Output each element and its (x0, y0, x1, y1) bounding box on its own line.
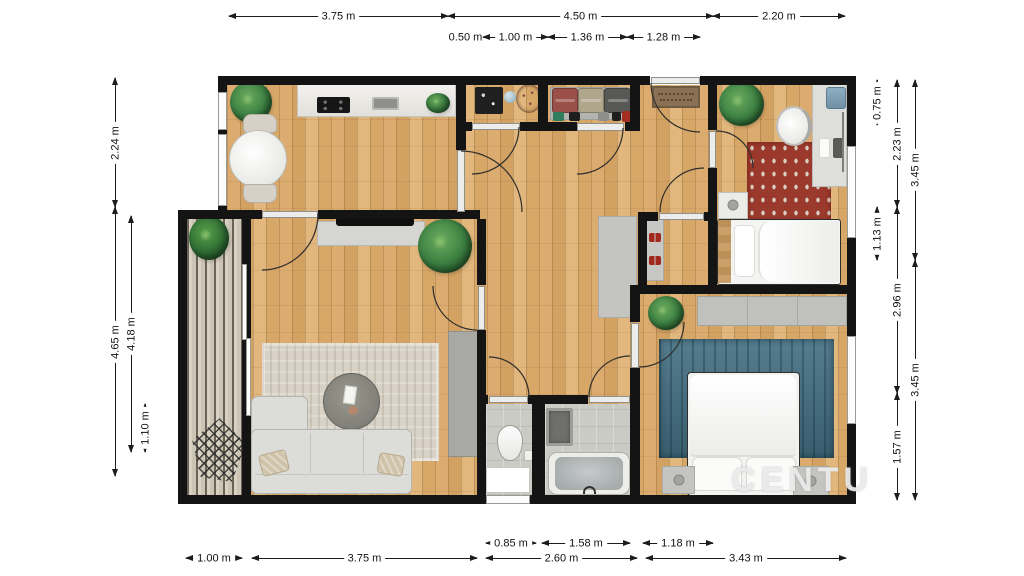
dimension-label: 2.20 m (758, 10, 800, 23)
dimension-line: 2.96 m (897, 207, 898, 393)
dimension-line: 2.20 m (713, 16, 845, 17)
door-left-nook (472, 123, 520, 130)
dimension-arrow (894, 493, 900, 501)
single-bed-duvet (758, 221, 839, 282)
wall-living-hall-lower (477, 330, 486, 495)
nightstand-left (662, 466, 695, 494)
kids-room-window (847, 146, 856, 238)
wall-master-left-lower (630, 368, 640, 495)
tv (336, 219, 414, 226)
door-wc (489, 396, 528, 403)
dimension-arrow (912, 79, 918, 87)
dimension-label: 1.00 m (495, 31, 537, 44)
dimension-arrow (912, 259, 918, 267)
single-bed (717, 219, 841, 285)
dimension-label: 0.50 m (445, 31, 487, 44)
dimension-arrow (630, 555, 638, 561)
bathroom-sink (546, 408, 573, 446)
sofa-seam-1 (310, 433, 311, 473)
dimension-label: 1.28 m (643, 31, 685, 44)
wall-kitchen-living-west (178, 210, 262, 219)
dimension-line: 3.45 m (915, 260, 916, 500)
dimension-arrow (838, 13, 846, 19)
dimension-line: 1.57 m (897, 393, 898, 500)
dimension-label: 2.23 m (891, 123, 904, 165)
master-wardrobe (697, 296, 847, 326)
dimension-line: 1.10 m (145, 404, 146, 452)
dimension-arrow (112, 77, 118, 85)
door-master (631, 323, 639, 368)
dimension-line: 1.18 m (643, 543, 713, 544)
closet-red-shoes-1 (649, 233, 661, 242)
master-plant (648, 296, 684, 330)
door-closet (659, 213, 704, 220)
coffee-table (323, 373, 380, 430)
table-decor (348, 406, 358, 415)
dimension-label: 3.75 m (318, 10, 360, 23)
wall-hall-kidsroom-lower (708, 168, 717, 212)
bathtub-faucet (583, 486, 596, 494)
wc-window-fixture (486, 467, 530, 493)
single-bed-headboard (718, 220, 731, 283)
wall-bedrooms-divider (630, 285, 856, 294)
wall-closet-top-right (704, 212, 717, 221)
dimension-arrow (541, 540, 549, 546)
desk-pen (842, 112, 844, 172)
balcony-sliding-door-pane-1 (242, 264, 247, 340)
dimension-label: 1.10 m (139, 407, 152, 449)
dimension-arrow (128, 215, 134, 223)
door-kitchen-hall (457, 150, 465, 212)
dimension-label: 1.36 m (567, 31, 609, 44)
balcony-sliding-door-pane-2 (246, 338, 251, 416)
shoe-black-2 (612, 112, 621, 121)
dimension-label: 1.13 m (871, 213, 884, 255)
entry-console-table (475, 87, 503, 114)
dining-table (229, 130, 287, 188)
wall-balcony-left (178, 210, 187, 504)
door-entry (651, 77, 700, 84)
dimension-line: 4.18 m (131, 216, 132, 452)
hanging-clothes-red (552, 88, 578, 113)
dimension-arrow (693, 34, 701, 40)
sofa-seam-2 (363, 433, 364, 473)
wall-closet-right (708, 212, 717, 294)
wall-nook-bottom-2 (520, 122, 577, 131)
wall-top-right (700, 76, 856, 85)
kitchen-window-lower (218, 134, 227, 206)
dimension-label: 1.57 m (891, 426, 904, 468)
dimension-arrow (447, 13, 455, 19)
dimension-line: 1.36 m (548, 37, 627, 38)
shoe-black-1 (569, 112, 580, 121)
door-kids-room (709, 131, 716, 168)
dimension-label: 4.65 m (109, 321, 122, 363)
dimension-arrow (185, 555, 193, 561)
dimension-arrow (235, 555, 243, 561)
balcony-bush (189, 216, 229, 260)
dimension-label: 2.24 m (109, 122, 122, 164)
dimension-line: 0.85 m (486, 543, 536, 544)
dimension-arrow (712, 13, 720, 19)
wall-top-left (218, 76, 650, 85)
dimension-label: 2.96 m (891, 279, 904, 321)
dimension-line: 3.43 m (646, 558, 846, 559)
shoe-green (553, 112, 564, 121)
dimension-line: 2.24 m (115, 78, 116, 207)
door-bathroom (589, 396, 630, 403)
dimension-label: 4.18 m (125, 313, 138, 355)
dimension-arrow (645, 555, 653, 561)
shoe-gray (598, 112, 609, 121)
dimension-arrow (228, 13, 236, 19)
sofa-pillow-right (376, 452, 405, 477)
wall-nook-bottom-3 (625, 122, 638, 131)
kitchen-window-upper (218, 92, 227, 130)
closet-shoe-shelf (645, 219, 664, 281)
wall-hall-kidsroom-upper (708, 76, 717, 130)
laptop (826, 87, 846, 109)
dimension-label: 3.45 m (909, 149, 922, 191)
wall-bath-top-1 (477, 395, 488, 404)
dimension-line: 1.13 m (877, 207, 878, 260)
door-kitchen-living (262, 211, 318, 218)
dimension-arrow (912, 493, 918, 501)
watermark: CENTU (731, 461, 873, 500)
wall-right-outer (847, 76, 856, 504)
dimension-arrow (894, 392, 900, 400)
doormat-script-2 (660, 99, 692, 101)
dimension-line: 2.23 m (897, 80, 898, 207)
dimension-line: 4.65 m (115, 207, 116, 476)
dimension-label: 1.58 m (565, 537, 607, 550)
dimension-arrow (839, 555, 847, 561)
dimension-arrow (128, 445, 134, 453)
counter-plant (426, 93, 450, 113)
dimension-label: 3.43 m (725, 552, 767, 565)
wc-window (486, 495, 530, 504)
living-room-plant (418, 219, 472, 273)
cooktop (317, 97, 350, 113)
kitchen-sink (372, 97, 399, 110)
dimension-line: 4.50 m (448, 16, 713, 17)
dimension-line: 3.45 m (915, 80, 916, 260)
dimension-line: 3.75 m (252, 558, 477, 559)
dimension-arrow (642, 540, 650, 546)
dimension-arrow (482, 34, 490, 40)
dimension-arrow (112, 206, 118, 214)
dimension-line: 1.28 m (627, 37, 700, 38)
dimension-arrow (470, 555, 478, 561)
wall-wc-bath-divider (532, 404, 545, 495)
dimension-arrow (547, 34, 555, 40)
dimension-arrow (894, 79, 900, 87)
dimension-arrow (894, 206, 900, 214)
wall-master-left-upper (630, 294, 640, 322)
entry-blue-bowl (504, 91, 516, 103)
kids-dresser-knob (726, 197, 740, 213)
wall-bath-top-2 (528, 395, 588, 404)
wall-bath-top-3 (630, 395, 640, 404)
dimension-label: 4.50 m (560, 10, 602, 23)
hanging-clothes-beige (578, 88, 604, 113)
hanging-clothes-gray (604, 88, 631, 113)
dimension-arrow (112, 469, 118, 477)
dimension-label: 3.75 m (344, 552, 386, 565)
wall-living-hall-upper (477, 219, 486, 285)
desk-paper (819, 138, 830, 158)
dimension-line: 1.00 m (483, 37, 548, 38)
door-living-hall (478, 286, 485, 330)
dimension-arrow (251, 555, 259, 561)
living-tall-cabinet (448, 331, 478, 457)
dimension-label: 1.00 m (193, 552, 235, 565)
wall-kitchen-living-east (318, 210, 480, 219)
dimension-line: 2.60 m (486, 558, 637, 559)
dimension-label: 2.60 m (541, 552, 583, 565)
doormat-script (658, 93, 694, 95)
kids-room-plant (719, 82, 764, 126)
dimension-arrow (706, 540, 714, 546)
dimension-arrow (626, 34, 634, 40)
dimension-line: 1.58 m (542, 543, 630, 544)
dimension-label: 0.85 m (490, 537, 532, 550)
dining-chair-bottom (243, 184, 277, 203)
magazine (343, 385, 357, 404)
dimension-line: 3.75 m (229, 16, 448, 17)
dimension-label: 0.75 m (871, 82, 884, 124)
wall-kitchen-nook (456, 76, 466, 150)
master-window (847, 336, 856, 424)
closet-red-shoes-2 (649, 256, 661, 265)
dimension-label: 1.18 m (657, 537, 699, 550)
door-wardrobe-nook (577, 123, 624, 131)
single-bed-pillow (734, 225, 755, 277)
dimension-line: 0.75 m (877, 80, 878, 125)
doormat (652, 86, 700, 108)
master-bed-duvet (690, 375, 796, 457)
desk-chair (776, 106, 812, 146)
dimension-arrow (623, 540, 631, 546)
floor-plan: CENTU 3.75 m4.50 m2.20 m0.50 m1.00 m1.36… (0, 0, 1024, 576)
dimension-line: 1.00 m (186, 558, 242, 559)
toilet-bowl (497, 425, 523, 461)
dimension-line: 0.50 m (448, 37, 483, 38)
dimension-label: 3.45 m (909, 359, 922, 401)
dimension-arrow (485, 555, 493, 561)
bathtub (548, 452, 630, 495)
wall-closet-left (638, 212, 647, 294)
